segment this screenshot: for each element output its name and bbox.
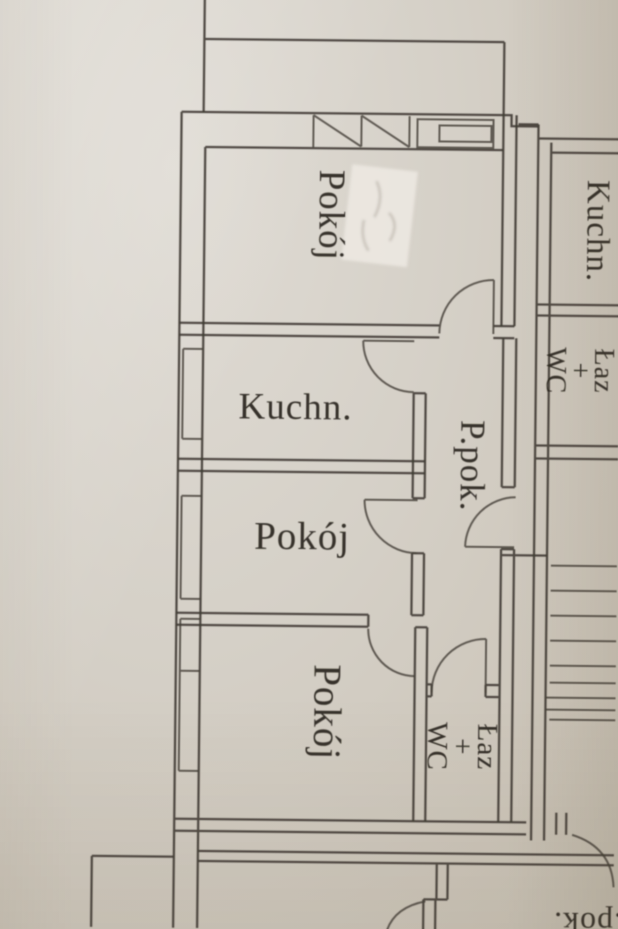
stair-bottom-door-arc (572, 835, 615, 887)
door-kitchen (363, 341, 415, 393)
plan-rotated-group: Pokój Kuchn. Pokój Pokój P.pok. Łaz + WC… (91, 0, 618, 929)
label-bath-left-line3: WC (421, 722, 454, 771)
label-bath-right: Łaz + WC (540, 347, 618, 395)
label-hall: P.pok. (452, 420, 492, 512)
left-apartment-doors (360, 279, 518, 694)
door-room-bottom (368, 629, 415, 676)
label-kitchen-right: Kuchn. (579, 180, 616, 283)
label-room-bottom: Pokój (305, 664, 349, 760)
top-balcony-outline (204, 0, 505, 115)
label-kitchen-left: Kuchn. (238, 386, 352, 428)
door-bath (432, 638, 487, 693)
door-room-top (439, 279, 494, 334)
label-lower-hall: P.pok. (553, 906, 618, 929)
floor-plan-photo: Pokój Kuchn. Pokój Pokój P.pok. Łaz + WC… (0, 0, 618, 929)
label-bath-right-line3: WC (540, 347, 571, 394)
lower-balcony-outline (91, 856, 174, 928)
floor-plan-drawing: Pokój Kuchn. Pokój Pokój P.pok. Łaz + WC… (0, 0, 618, 929)
stair-bottom-wall (556, 813, 566, 835)
door-room-middle (364, 500, 418, 554)
label-bath-left: Łaz + WC (421, 722, 504, 772)
staircase-steps (545, 566, 617, 721)
label-room-middle: Pokój (254, 515, 350, 559)
lower-apartment-walls (197, 851, 614, 929)
label-room-top: Pokój (310, 169, 352, 261)
lower-door-arc (387, 901, 425, 929)
balcony-door-and-window-symbols (313, 115, 493, 149)
